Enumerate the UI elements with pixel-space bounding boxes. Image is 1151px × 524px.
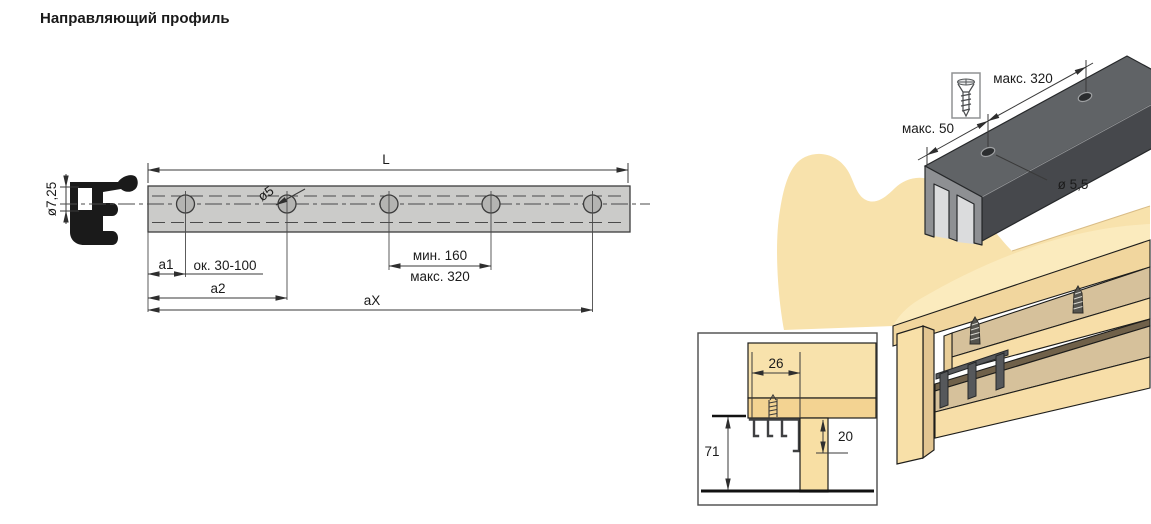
a1-label: a1 — [158, 257, 173, 272]
iso-hole-dia-label: ø 5,5 — [1058, 177, 1089, 192]
technical-drawing: ø7,25 — [0, 0, 1151, 524]
aX-label: aX — [364, 293, 381, 308]
detail-panel — [748, 343, 876, 398]
dim-hole-spacing: мин. 160 макс. 320 — [389, 248, 491, 284]
profile-cross-section — [70, 175, 138, 245]
spacing-max-label: макс. 320 — [410, 269, 470, 284]
dim-a2: a2 — [148, 281, 287, 298]
dim-length: L — [148, 152, 628, 183]
clearance-label: 20 — [838, 429, 853, 444]
front-post — [897, 326, 934, 464]
profile-tooth — [968, 362, 976, 399]
iso-hole-spacing-label: макс. 320 — [993, 71, 1053, 86]
plan-rail — [60, 186, 650, 312]
detail-inset: 26 71 20 — [698, 333, 877, 505]
length-label: L — [382, 152, 390, 167]
screw-icon — [952, 73, 980, 118]
profile-tooth — [940, 371, 948, 408]
a2-label: a2 — [210, 281, 225, 296]
page: Направляющий профиль ø7,25 — [0, 0, 1151, 524]
profile-slot-dia-label: ø7,25 — [44, 182, 59, 217]
page-title: Направляющий профиль — [40, 10, 230, 27]
inset-depth-label: 26 — [768, 356, 783, 371]
spacing-min-label: мин. 160 — [413, 248, 467, 263]
end-offset-label: макс. 50 — [902, 121, 954, 136]
detail-post — [800, 418, 828, 492]
plan-view: ø7,25 — [44, 152, 650, 312]
a1-range-label: ок. 30-100 — [194, 258, 257, 273]
dim-a1: a1 ок. 30-100 — [148, 257, 263, 274]
front-height-label: 71 — [704, 444, 719, 459]
detail-strip — [748, 398, 876, 418]
profile-tooth — [996, 353, 1004, 390]
